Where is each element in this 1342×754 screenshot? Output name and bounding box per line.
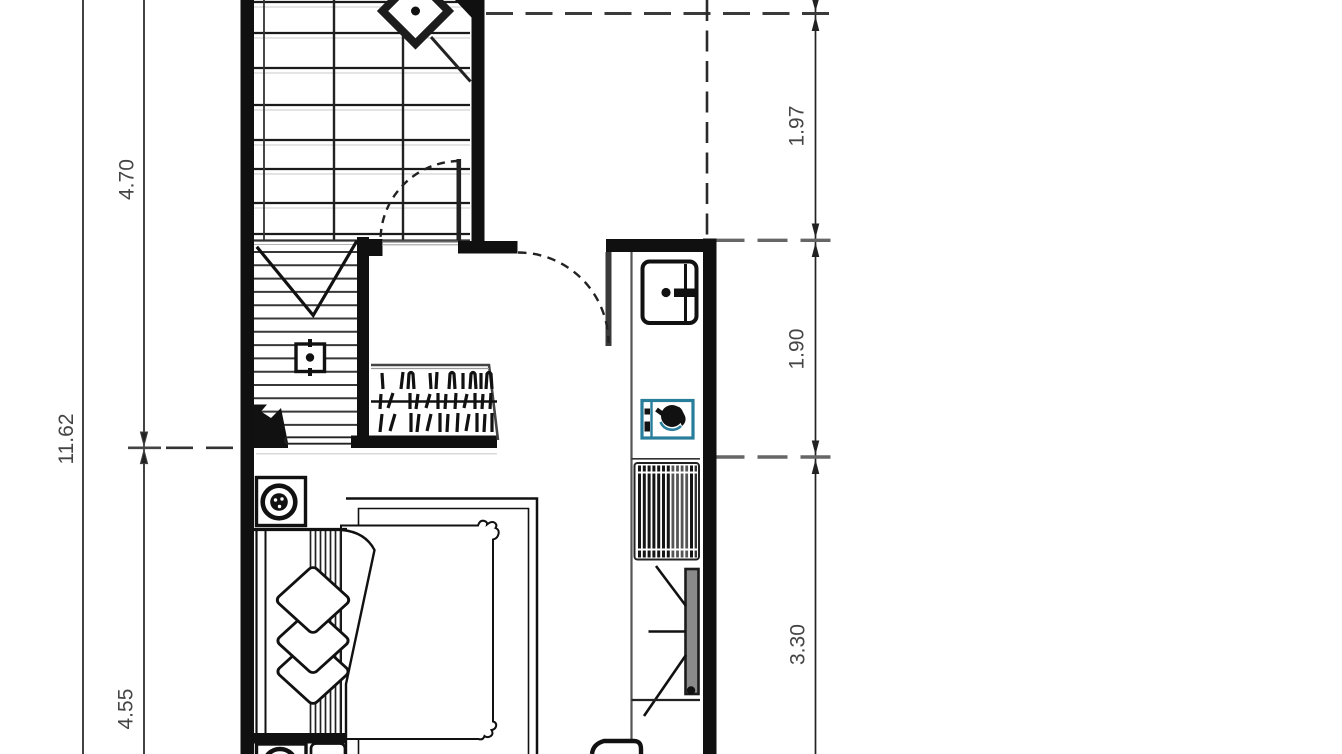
svg-text:4.70: 4.70 [116, 159, 139, 200]
svg-text:3.30: 3.30 [787, 624, 810, 665]
svg-text:1.97: 1.97 [786, 106, 809, 147]
svg-text:11.62: 11.62 [55, 414, 78, 465]
svg-text:1.90: 1.90 [786, 329, 809, 370]
svg-text:4.55: 4.55 [115, 689, 138, 730]
